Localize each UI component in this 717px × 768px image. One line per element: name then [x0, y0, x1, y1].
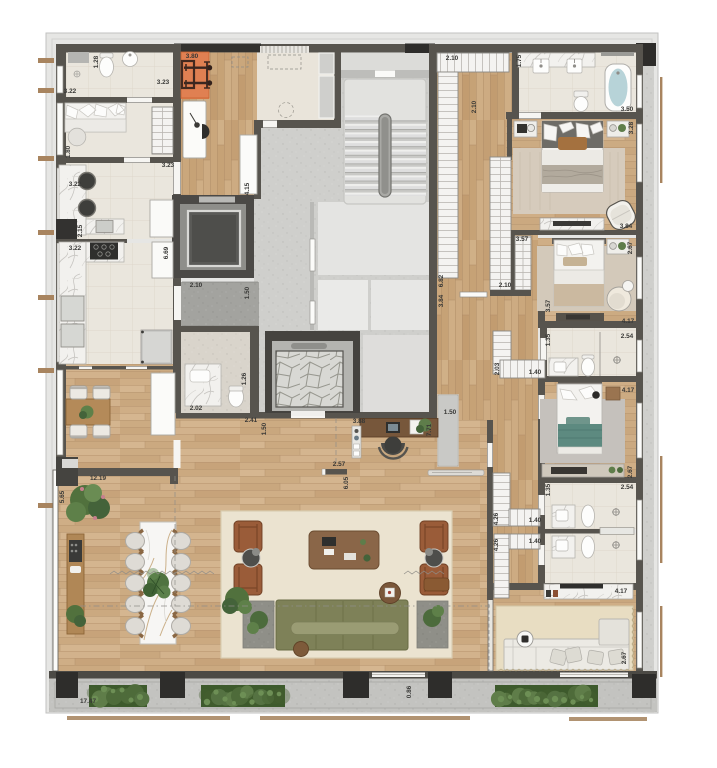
svg-text:2.54: 2.54: [621, 484, 634, 491]
svg-text:3.23: 3.23: [157, 79, 170, 86]
svg-text:2.10: 2.10: [471, 100, 478, 113]
svg-text:2.03: 2.03: [494, 362, 501, 375]
svg-text:1.35: 1.35: [545, 333, 552, 346]
svg-text:4.17: 4.17: [622, 387, 635, 394]
svg-text:2.02: 2.02: [190, 405, 203, 412]
svg-text:12.19: 12.19: [90, 475, 106, 482]
svg-text:0.86: 0.86: [406, 685, 413, 698]
svg-text:4.15: 4.15: [244, 182, 251, 195]
svg-text:1.28: 1.28: [93, 55, 100, 68]
svg-text:3.50: 3.50: [621, 106, 634, 113]
svg-text:1.35: 1.35: [545, 483, 552, 496]
svg-text:2.15: 2.15: [77, 224, 84, 237]
svg-text:4.17: 4.17: [615, 588, 628, 595]
svg-text:3.22: 3.22: [64, 88, 77, 95]
svg-text:3.84: 3.84: [438, 294, 445, 307]
svg-text:2.57: 2.57: [333, 461, 346, 468]
svg-text:3.84: 3.84: [620, 223, 633, 230]
svg-text:3.57: 3.57: [516, 236, 529, 243]
svg-text:1.50: 1.50: [444, 409, 457, 416]
svg-text:4.17: 4.17: [622, 318, 635, 325]
svg-text:6.05: 6.05: [343, 476, 350, 489]
svg-text:3.22: 3.22: [69, 245, 82, 252]
svg-text:3.22: 3.22: [69, 181, 82, 188]
svg-text:2.67: 2.67: [627, 465, 634, 478]
svg-text:17.47: 17.47: [80, 698, 96, 705]
svg-text:5.65: 5.65: [59, 490, 66, 503]
svg-text:1.50: 1.50: [244, 286, 251, 299]
svg-text:1.50: 1.50: [261, 422, 268, 435]
svg-text:7.71: 7.71: [426, 423, 433, 436]
svg-text:2.67: 2.67: [621, 651, 628, 664]
svg-text:6.69: 6.69: [163, 246, 170, 259]
svg-text:1.75: 1.75: [516, 54, 523, 67]
svg-text:3.57: 3.57: [545, 299, 552, 312]
svg-text:3.28: 3.28: [628, 121, 635, 134]
svg-text:1.26: 1.26: [241, 372, 248, 385]
svg-text:2.67: 2.67: [627, 241, 634, 254]
svg-text:4.26: 4.26: [493, 512, 500, 525]
svg-text:3.23: 3.23: [162, 162, 175, 169]
svg-text:2.41: 2.41: [245, 417, 258, 424]
svg-text:2.10: 2.10: [190, 282, 203, 289]
svg-text:4.26: 4.26: [493, 538, 500, 551]
svg-text:3.88: 3.88: [353, 418, 366, 425]
svg-text:1.40: 1.40: [529, 538, 542, 545]
svg-text:1.40: 1.40: [529, 369, 542, 376]
svg-text:3.80: 3.80: [186, 53, 199, 60]
svg-text:2.10: 2.10: [446, 55, 459, 62]
svg-text:2.54: 2.54: [621, 333, 634, 340]
svg-text:1.40: 1.40: [529, 517, 542, 524]
svg-text:2.10: 2.10: [499, 282, 512, 289]
svg-text:6.82: 6.82: [438, 274, 445, 287]
svg-text:1.80: 1.80: [65, 145, 72, 158]
